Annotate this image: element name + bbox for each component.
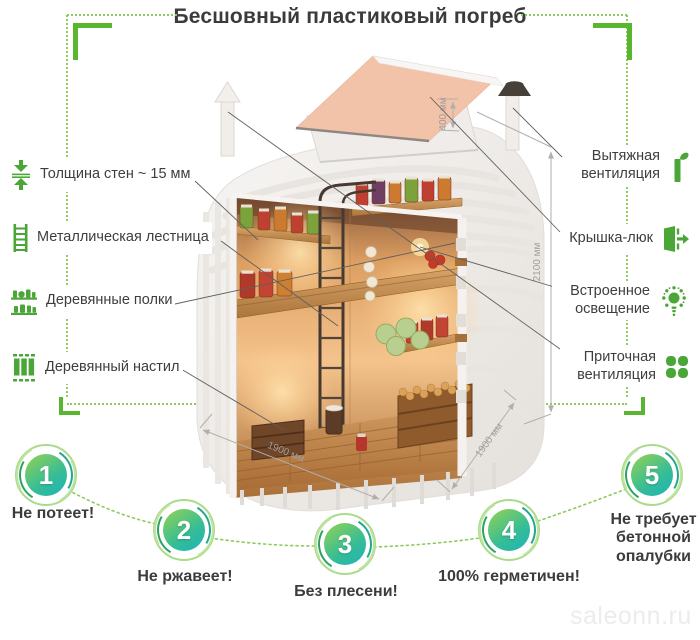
frame-dotted-top-right — [521, 14, 627, 16]
light-bulb-icon — [659, 285, 689, 317]
feature-wall-thickness: Толщина стен ~ 15 мм — [8, 158, 193, 192]
benefit-label-1: Не потеет! — [0, 505, 108, 523]
frame-corner-bracket-bottom-left — [59, 397, 80, 415]
wooden-shelf — [400, 333, 462, 353]
frame-corner-bracket-top-right — [593, 23, 632, 60]
barrel-jar — [326, 405, 343, 434]
preserve-jars — [240, 269, 292, 299]
benefit-label-3: Без плесени! — [291, 583, 401, 601]
frame-dotted-left — [66, 15, 68, 397]
right-wall-ribs — [466, 249, 542, 418]
feature-label: Крышка-люк — [569, 230, 653, 248]
benefit-label-4: 100% герметичен! — [434, 568, 584, 586]
interior-lamp — [411, 238, 429, 256]
feature-exhaust-vent: Вытяжная вентиляция — [567, 146, 692, 185]
dimension-width: 1900 мм — [266, 440, 306, 465]
feature-supply-vent: Приточная вентиляция — [563, 347, 692, 386]
benefit-circle-3: 3 — [314, 513, 376, 575]
benefit-circle-1: 1 — [15, 444, 77, 506]
fan-icon — [665, 355, 689, 379]
wooden-shelf — [236, 226, 330, 244]
garlic-braid — [364, 247, 378, 302]
ladder-icon — [13, 224, 28, 252]
circle-accent-arc — [476, 497, 541, 562]
dimension-lines — [200, 99, 551, 501]
hatch-collar — [307, 106, 478, 162]
frame-dotted-right — [626, 15, 628, 397]
wooden-shelf — [236, 268, 462, 318]
wooden-floor — [233, 406, 462, 490]
feature-hatch: Крышка-люк — [566, 224, 692, 254]
infographic-page: Бесшовный пластиковый погреб — [0, 0, 700, 640]
dimension-hatch-height: 400 мм — [438, 97, 449, 130]
decking-icon — [12, 354, 36, 382]
feature-ladder: Металлическая лестница — [10, 222, 212, 254]
frame-corner-bracket-bottom-right — [624, 397, 645, 415]
feature-label: Деревянные полки — [46, 292, 172, 310]
wall-cut-edges — [231, 195, 467, 498]
leader-lines — [175, 97, 562, 430]
cellar-interior — [230, 176, 484, 499]
benefit-label-5: Не требует бетонной опалубки — [606, 511, 700, 566]
wall-thickness-icon — [11, 160, 31, 190]
circle-accent-arc — [13, 442, 78, 507]
hatch-door-icon — [662, 226, 689, 252]
feature-label: Вытяжная вентиляция — [570, 148, 660, 183]
frame-dotted-top-left — [67, 14, 177, 16]
vent-pipe-left — [215, 82, 240, 156]
shelves-icon — [11, 287, 37, 315]
feature-decking: Деревянный настил — [9, 352, 183, 384]
feature-shelves: Деревянные полки — [8, 285, 175, 317]
dimension-labels: 400 мм 2100 мм 1900 мм 1900 мм — [266, 97, 543, 465]
hatch-lid — [296, 56, 503, 141]
circle-accent-arc — [312, 511, 377, 576]
benefit-circle-4: 4 — [478, 499, 540, 561]
top-ribs — [209, 169, 534, 270]
cabbages — [376, 318, 429, 356]
circle-accent-arc — [151, 497, 216, 562]
dimension-depth: 1900 мм — [474, 421, 506, 459]
feature-label: Приточная вентиляция — [566, 349, 656, 384]
cellar-body — [197, 126, 544, 510]
feature-light: Встроенное освещение — [552, 281, 692, 320]
circle-accent-arc — [619, 442, 684, 507]
vent-pipe-right — [498, 81, 531, 150]
preserve-jars — [406, 315, 448, 344]
benefit-circle-2: 2 — [153, 499, 215, 561]
benefit-label-2: Не ржавеет! — [130, 568, 240, 586]
preserve-jars — [356, 176, 451, 207]
metal-ladder — [320, 182, 376, 468]
base-ribs — [242, 463, 494, 510]
red-peppers — [425, 251, 445, 269]
potato-crate — [398, 380, 472, 448]
feature-label: Толщина стен ~ 15 мм — [40, 166, 190, 184]
frame-dotted-bottom — [67, 403, 627, 405]
wooden-shelf — [352, 198, 462, 216]
small-jar — [356, 434, 367, 452]
frame-corner-bracket-top-left — [73, 23, 112, 60]
preserve-jars — [240, 205, 320, 235]
benefit-circle-5: 5 — [621, 444, 683, 506]
feature-label: Деревянный настил — [45, 359, 180, 377]
watermark: saleonn.ru — [570, 602, 692, 631]
feature-label: Металлическая лестница — [37, 229, 209, 247]
dimension-body-height: 2100 мм — [532, 242, 543, 281]
exhaust-vent-icon — [669, 150, 689, 182]
storage-crate — [252, 420, 304, 460]
feature-label: Встроенное освещение — [555, 283, 650, 318]
